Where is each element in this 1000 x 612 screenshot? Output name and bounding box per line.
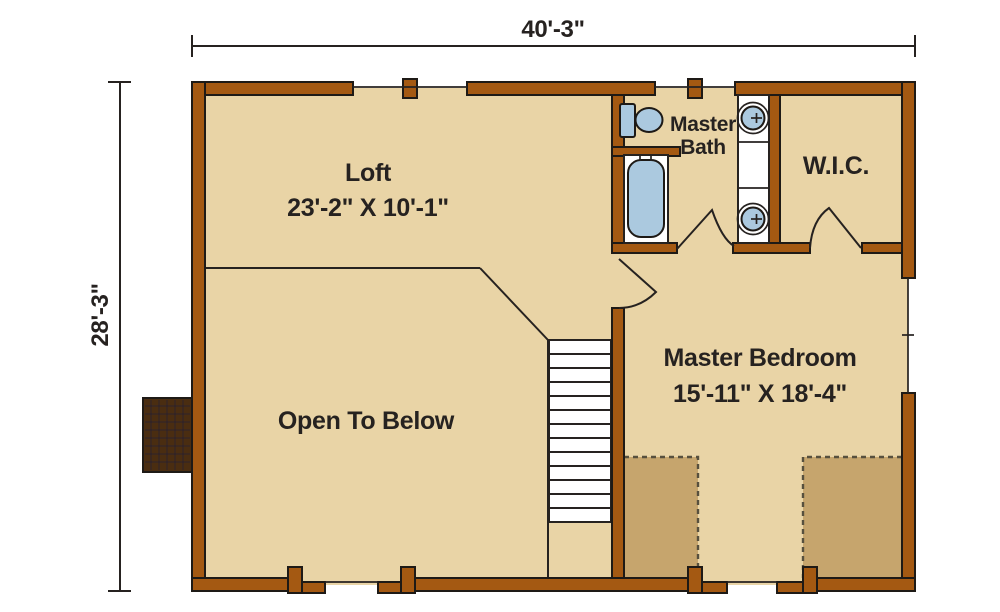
wall-segment xyxy=(192,82,353,95)
stair-tread xyxy=(549,354,611,368)
opening-jamb xyxy=(401,567,415,593)
stair-tread xyxy=(549,410,611,424)
chimney xyxy=(143,398,192,472)
left-dimension: 28'-3" xyxy=(87,82,131,591)
vanity xyxy=(738,95,770,243)
wall-segment xyxy=(733,243,810,253)
chimney-hatch xyxy=(145,400,190,470)
stair-tread xyxy=(549,452,611,466)
loft-label: Loft xyxy=(345,159,392,187)
sink-icon xyxy=(738,204,769,235)
wall-segment xyxy=(612,308,624,578)
opening-jamb xyxy=(803,567,817,593)
bathtub-icon xyxy=(624,155,668,243)
sink-icon xyxy=(738,103,769,134)
wall-segment xyxy=(612,243,677,253)
top-dimension: 40'-3" xyxy=(192,16,915,57)
wall-segment xyxy=(415,578,688,591)
toilet-bowl xyxy=(636,108,663,132)
opening-jamb xyxy=(288,567,302,593)
opening-jamb xyxy=(777,582,803,593)
window-mullion xyxy=(403,79,417,98)
wall-segment xyxy=(192,82,205,591)
wall-segment xyxy=(902,82,915,278)
floor-plan: 40'-3" 28'-3" xyxy=(0,0,1000,607)
bathtub xyxy=(628,160,664,237)
opening-jamb xyxy=(378,582,401,593)
opening-jamb xyxy=(688,567,702,593)
wall-segment xyxy=(769,95,780,243)
stair-tread xyxy=(549,368,611,382)
staircase xyxy=(549,340,611,522)
master-bath-label-line1: Master xyxy=(670,113,736,136)
stair-tread xyxy=(549,466,611,480)
attic-zone-left xyxy=(624,457,698,578)
wall-segment xyxy=(862,243,902,253)
open-to-below-label: Open To Below xyxy=(278,407,455,435)
wall-segment xyxy=(817,578,915,591)
attic-floor xyxy=(624,457,698,578)
stair-tread xyxy=(549,424,611,438)
stair-tread xyxy=(549,438,611,452)
window-mullion xyxy=(688,79,702,98)
stair-tread xyxy=(549,480,611,494)
stair-tread xyxy=(549,396,611,410)
floor-plan-page: 40'-3" 28'-3" xyxy=(0,0,1000,607)
height-dimension-label: 28'-3" xyxy=(87,283,114,346)
master-bedroom-label: Master Bedroom xyxy=(663,344,856,372)
wall-segment xyxy=(735,82,915,95)
master-bath-label-line2: Bath xyxy=(680,136,725,159)
loft-size-label: 23'-2" X 10'-1" xyxy=(287,194,449,222)
opening-jamb xyxy=(302,582,325,593)
stair-tread xyxy=(549,340,611,354)
opening-jamb xyxy=(702,582,727,593)
stair-tread xyxy=(549,382,611,396)
toilet-tank xyxy=(620,104,635,137)
attic-zone-right xyxy=(803,457,902,578)
wic-label: W.I.C. xyxy=(803,152,869,180)
master-bedroom-size-label: 15'-11" X 18'-4" xyxy=(673,380,847,408)
stair-tread xyxy=(549,494,611,508)
wall-segment xyxy=(467,82,655,95)
width-dimension-label: 40'-3" xyxy=(521,16,584,43)
stair-tread xyxy=(549,508,611,522)
wall-segment xyxy=(902,393,915,591)
wall-segment xyxy=(192,578,288,591)
attic-floor xyxy=(803,457,902,578)
